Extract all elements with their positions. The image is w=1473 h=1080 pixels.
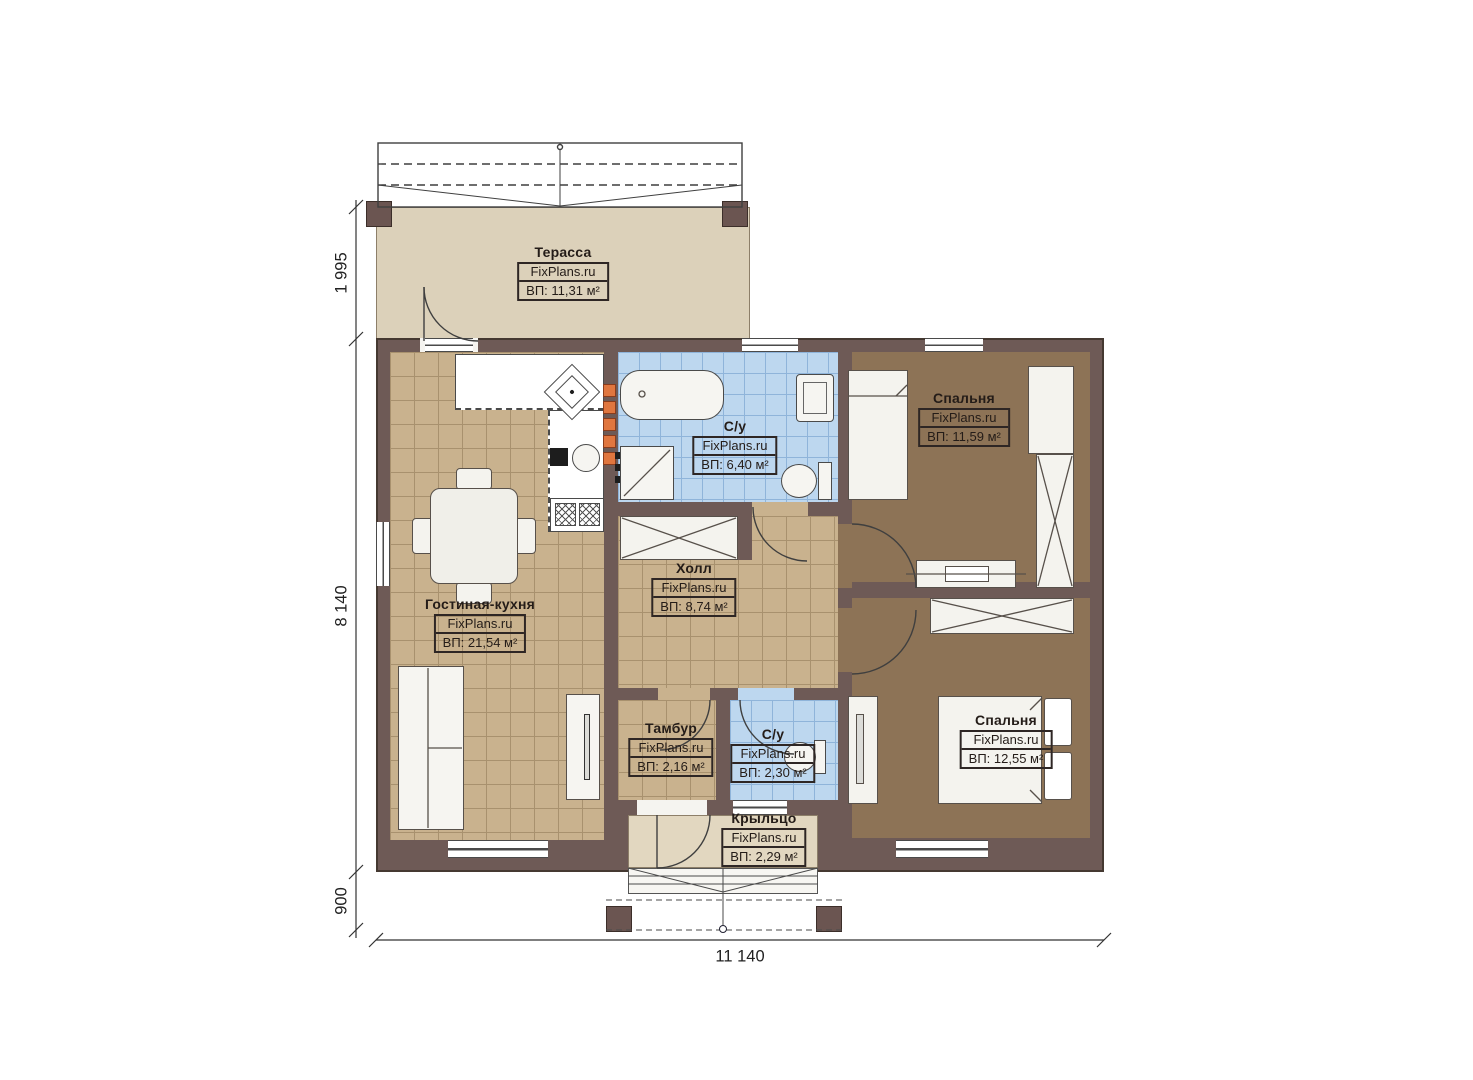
room-label-living-kitchen: Гостиная-кухня FixPlans.ru ВП: 21,54 м² [425, 596, 535, 653]
washing-machine [572, 444, 600, 472]
room-info-box-bathroom-main: FixPlans.ru ВП: 6,40 м² [692, 436, 777, 475]
room-label-hall: Холл FixPlans.ru ВП: 8,74 м² [651, 560, 736, 617]
dresser-top-bedroom [916, 560, 1016, 588]
window-living-left [376, 522, 390, 586]
dimension-house-depth: 8 140 [333, 585, 352, 626]
shower [620, 446, 674, 500]
toilet-main-bowl [781, 464, 817, 498]
room-area-tambour: ВП: 2,16 м² [630, 758, 711, 775]
room-info-box-terrace: FixPlans.ru ВП: 11,31 м² [517, 262, 609, 301]
room-info-box-bathroom-small: FixPlans.ru ВП: 2,30 м² [730, 744, 815, 783]
front-door-opening [637, 800, 707, 815]
brand-watermark: FixPlans.ru [920, 410, 1008, 428]
porch-post-right [816, 906, 842, 932]
room-name-bedroom-bottom: Спальня [960, 712, 1053, 728]
wardrobe-x-bottom-bedroom [930, 598, 1074, 634]
shower-knob-1 [615, 452, 620, 459]
room-info-box-living-kitchen: FixPlans.ru ВП: 21,54 м² [434, 614, 527, 653]
room-area-living-kitchen: ВП: 21,54 м² [436, 634, 525, 651]
vent-marker-4 [603, 435, 616, 448]
tv-stand-living [566, 694, 600, 800]
tv-bedroom [856, 714, 864, 784]
terrace-post-left [366, 201, 392, 227]
window-bathroom-top [742, 338, 798, 352]
bathroom-small-door-opening [738, 688, 794, 700]
brand-watermark: FixPlans.ru [630, 740, 711, 758]
shower-knob-2 [615, 464, 620, 471]
room-area-bathroom-small: ВП: 2,30 м² [732, 764, 813, 781]
bed-single [848, 370, 908, 500]
brand-watermark: FixPlans.ru [694, 438, 775, 456]
room-name-porch: Крыльцо [721, 810, 806, 826]
bathroom-sink-basin [803, 382, 827, 414]
window-bedroom-bottom [896, 840, 988, 858]
room-name-hall: Холл [651, 560, 736, 576]
room-name-tambour: Тамбур [628, 720, 713, 736]
tambour-door-opening [658, 688, 710, 700]
room-label-bedroom-bottom: Спальня FixPlans.ru ВП: 12,55 м² [960, 712, 1053, 769]
room-name-living-kitchen: Гостиная-кухня [425, 596, 535, 612]
hall-closet [620, 516, 738, 560]
bathtub [620, 370, 724, 420]
bedroom-bottom-door-opening [838, 608, 852, 672]
dresser-drawer [945, 566, 989, 582]
dining-chair-top [456, 468, 492, 490]
dining-table [430, 488, 518, 584]
room-area-bedroom-bottom: ВП: 12,55 м² [962, 750, 1051, 767]
room-label-bathroom-main: С/у FixPlans.ru ВП: 6,40 м² [692, 418, 777, 475]
window-living-bottom [448, 840, 548, 858]
room-label-tambour: Тамбур FixPlans.ru ВП: 2,16 м² [628, 720, 713, 777]
brand-watermark: FixPlans.ru [653, 580, 734, 598]
room-info-box-tambour: FixPlans.ru ВП: 2,16 м² [628, 738, 713, 777]
room-area-bedroom-top: ВП: 11,59 м² [920, 428, 1008, 445]
wardrobe-x-top-bedroom [1036, 454, 1074, 588]
room-area-hall: ВП: 8,74 м² [653, 598, 734, 615]
floor-plan: Терасса FixPlans.ru ВП: 11,31 м² С/у Fix… [0, 0, 1473, 1080]
room-area-bathroom-main: ВП: 6,40 м² [694, 456, 775, 473]
pergola-hatch [378, 143, 742, 207]
brand-watermark: FixPlans.ru [962, 732, 1051, 750]
dimension-porch-depth: 900 [333, 887, 352, 915]
room-name-bathroom-main: С/у [692, 418, 777, 434]
vent-marker-2 [603, 401, 616, 414]
tv-living [584, 714, 590, 780]
sofa [398, 666, 464, 830]
room-area-porch: ВП: 2,29 м² [723, 848, 804, 865]
porch-steps [628, 868, 818, 894]
dimension-terrace-depth: 1 995 [333, 252, 352, 293]
porch-post-left [606, 906, 632, 932]
vent-marker-1 [603, 384, 616, 397]
room-name-terrace: Терасса [517, 244, 609, 260]
bathroom-door-opening [752, 502, 808, 516]
brand-watermark: FixPlans.ru [436, 616, 525, 634]
room-name-bedroom-top: Спальня [918, 390, 1010, 406]
room-area-terrace: ВП: 11,31 м² [519, 282, 607, 299]
room-info-box-porch: FixPlans.ru ВП: 2,29 м² [721, 828, 806, 867]
brand-watermark: FixPlans.ru [519, 264, 607, 282]
room-label-porch: Крыльцо FixPlans.ru ВП: 2,29 м² [721, 810, 806, 867]
bedroom-top-door-opening [838, 524, 852, 588]
tv-stand-bedroom [848, 696, 878, 804]
room-label-bathroom-small: С/у FixPlans.ru ВП: 2,30 м² [730, 726, 815, 783]
dimension-house-width: 11 140 [715, 948, 764, 967]
stove-burner-right [579, 503, 600, 526]
window-bedroom-top [925, 338, 983, 352]
brand-watermark: FixPlans.ru [732, 746, 813, 764]
terrace-post-right [722, 201, 748, 227]
toilet-main-tank [818, 462, 832, 500]
bathroom-sink [796, 374, 834, 422]
room-name-bathroom-small: С/у [730, 726, 815, 742]
window-kitchen-top [425, 338, 473, 352]
shower-knob-3 [615, 476, 620, 483]
vent-marker-3 [603, 418, 616, 431]
room-info-box-bedroom-bottom: FixPlans.ru ВП: 12,55 м² [960, 730, 1053, 769]
stove-burner-left [555, 503, 576, 526]
kitchen-oven [550, 448, 568, 466]
room-label-terrace: Терасса FixPlans.ru ВП: 11,31 м² [517, 244, 609, 301]
room-info-box-hall: FixPlans.ru ВП: 8,74 м² [651, 578, 736, 617]
brand-watermark: FixPlans.ru [723, 830, 804, 848]
room-label-bedroom-top: Спальня FixPlans.ru ВП: 11,59 м² [918, 390, 1010, 447]
room-info-box-bedroom-top: FixPlans.ru ВП: 11,59 м² [918, 408, 1010, 447]
hall-wall-stub [738, 502, 752, 560]
wardrobe-plain-top-bedroom [1028, 366, 1074, 454]
